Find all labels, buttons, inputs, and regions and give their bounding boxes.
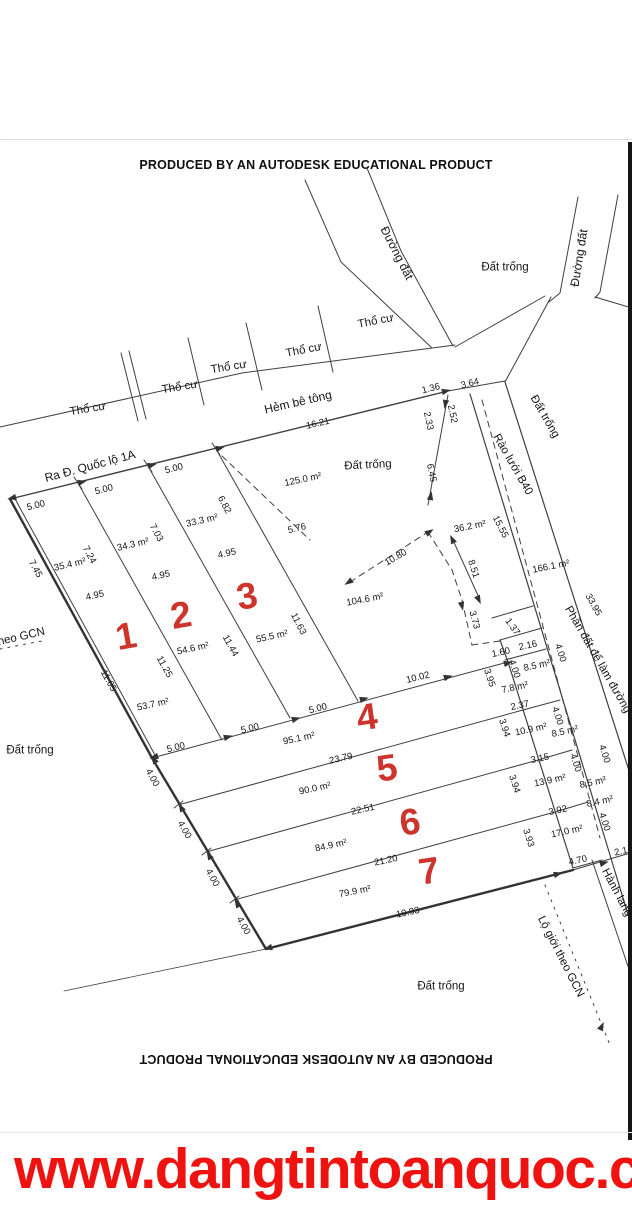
autodesk-watermark-bottom: PRODUCED BY AN AUTODESK EDUCATIONAL PROD… — [0, 1052, 632, 1066]
dimension-label: 2.33 — [421, 411, 434, 431]
dimension-label: 6.45 — [424, 463, 437, 483]
place-label: Đất trống — [417, 981, 464, 993]
place-label: Đất trống — [6, 745, 53, 757]
right-edge-bar — [628, 142, 632, 1140]
plot-number: 4 — [354, 697, 380, 737]
footer-url-text: www.dangtintoanquoc.co — [14, 1136, 632, 1218]
dimension-label: 2.1 — [614, 846, 629, 858]
cadastral-linework — [0, 0, 632, 1218]
place-label: Đất trống — [344, 459, 392, 473]
place-label: Đất trống — [481, 262, 528, 274]
survey-drawing-screenshot: PRODUCED BY AN AUTODESK EDUCATIONAL PROD… — [0, 0, 632, 1218]
bottom-divider — [0, 1132, 632, 1133]
dimension-label: 2.52 — [445, 404, 458, 424]
